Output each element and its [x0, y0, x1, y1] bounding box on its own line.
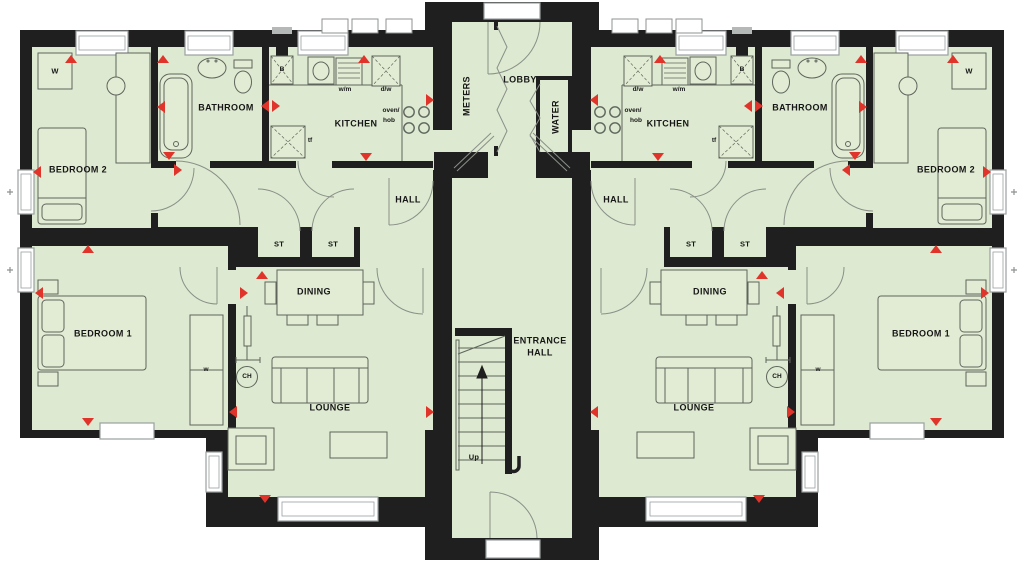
dishwasher-label-left: d/w [381, 87, 392, 94]
kitchen-sink-icon [690, 57, 716, 84]
room-label-kitchen-right: KITCHEN [647, 120, 690, 129]
room-label-bedroom1-left: BEDROOM 1 [74, 330, 132, 339]
coffee-table-icon [637, 432, 694, 458]
bathtub-icon [832, 74, 864, 158]
room-label-storage2-right: ST [686, 240, 696, 248]
armchair-icon [228, 428, 274, 470]
coffee-table-icon [330, 432, 387, 458]
sink-icon [798, 58, 826, 78]
washing-machine-label-right: w/m [673, 87, 686, 94]
kitchen-sink-icon [308, 57, 334, 84]
room-label-bathroom-left: BATHROOM [198, 104, 254, 113]
sofa-icon [272, 357, 368, 403]
room-label-bathroom-right: BATHROOM [772, 104, 828, 113]
room-label-lounge-left: LOUNGE [310, 404, 351, 413]
wardrobe-label-bed1-right: w [815, 367, 820, 374]
oven-label-left-2: hob [383, 118, 395, 125]
room-label-hall-left: HALL [395, 196, 421, 205]
room-label-lounge-right: LOUNGE [674, 404, 715, 413]
sofa-icon [656, 357, 752, 403]
room-label-bedroom2-right: BEDROOM 2 [917, 166, 975, 175]
single-bed-icon [38, 128, 86, 224]
wardrobe-label-bed1-left: w [203, 367, 208, 374]
room-label-water: WATER [552, 100, 561, 134]
room-label-entrance-hall-2: HALL [527, 349, 553, 358]
boiler-label-left: B [280, 67, 285, 74]
armchair-icon [750, 428, 796, 470]
boiler-label-right: B [740, 67, 745, 74]
drainer-icon [662, 58, 688, 85]
bathtub-icon [160, 74, 192, 158]
floor-plan: BEDROOM 2 BATHROOM KITCHEN HALL ST ST DI… [0, 0, 1024, 562]
ch-label-left: CH [242, 374, 251, 381]
oven-label-right-2: hob [630, 118, 642, 125]
ch-label-right: CH [772, 374, 781, 381]
washing-machine-label-left: w/m [339, 87, 352, 94]
wardrobe-label-left: W [51, 67, 58, 75]
fridge-icon [271, 126, 305, 158]
room-label-dining-left: DINING [297, 288, 331, 297]
room-label-storage1-right: ST [740, 240, 750, 248]
room-label-kitchen-left: KITCHEN [335, 120, 378, 129]
toilet-icon [772, 60, 790, 93]
room-label-entrance-hall-1: ENTRANCE [513, 337, 566, 346]
room-label-bedroom1-right: BEDROOM 1 [892, 330, 950, 339]
stairs-up-label: Up [469, 453, 479, 461]
oven-label-left-1: oven/ [383, 108, 400, 115]
room-label-dining-right: DINING [693, 288, 727, 297]
dishwasher-icon [372, 56, 400, 86]
fridge-label-right: tf [712, 138, 716, 145]
wardrobe-label-right: W [965, 67, 972, 75]
fridge-label-left: tf [308, 138, 312, 145]
single-bed-icon [938, 128, 986, 224]
fridge-icon [719, 126, 753, 158]
dishwasher-icon [624, 56, 652, 86]
toilet-icon [234, 60, 252, 93]
room-label-lobby: LOBBY [503, 76, 537, 85]
room-label-meters: METERS [463, 76, 472, 116]
drainer-icon [336, 58, 362, 85]
dishwasher-label-right: d/w [633, 87, 644, 94]
oven-label-right-1: oven/ [625, 108, 642, 115]
room-label-storage1-left: ST [274, 240, 284, 248]
room-label-bedroom2-left: BEDROOM 2 [49, 166, 107, 175]
sink-icon [198, 58, 226, 78]
room-label-storage2-left: ST [328, 240, 338, 248]
room-label-hall-right: HALL [603, 196, 629, 205]
